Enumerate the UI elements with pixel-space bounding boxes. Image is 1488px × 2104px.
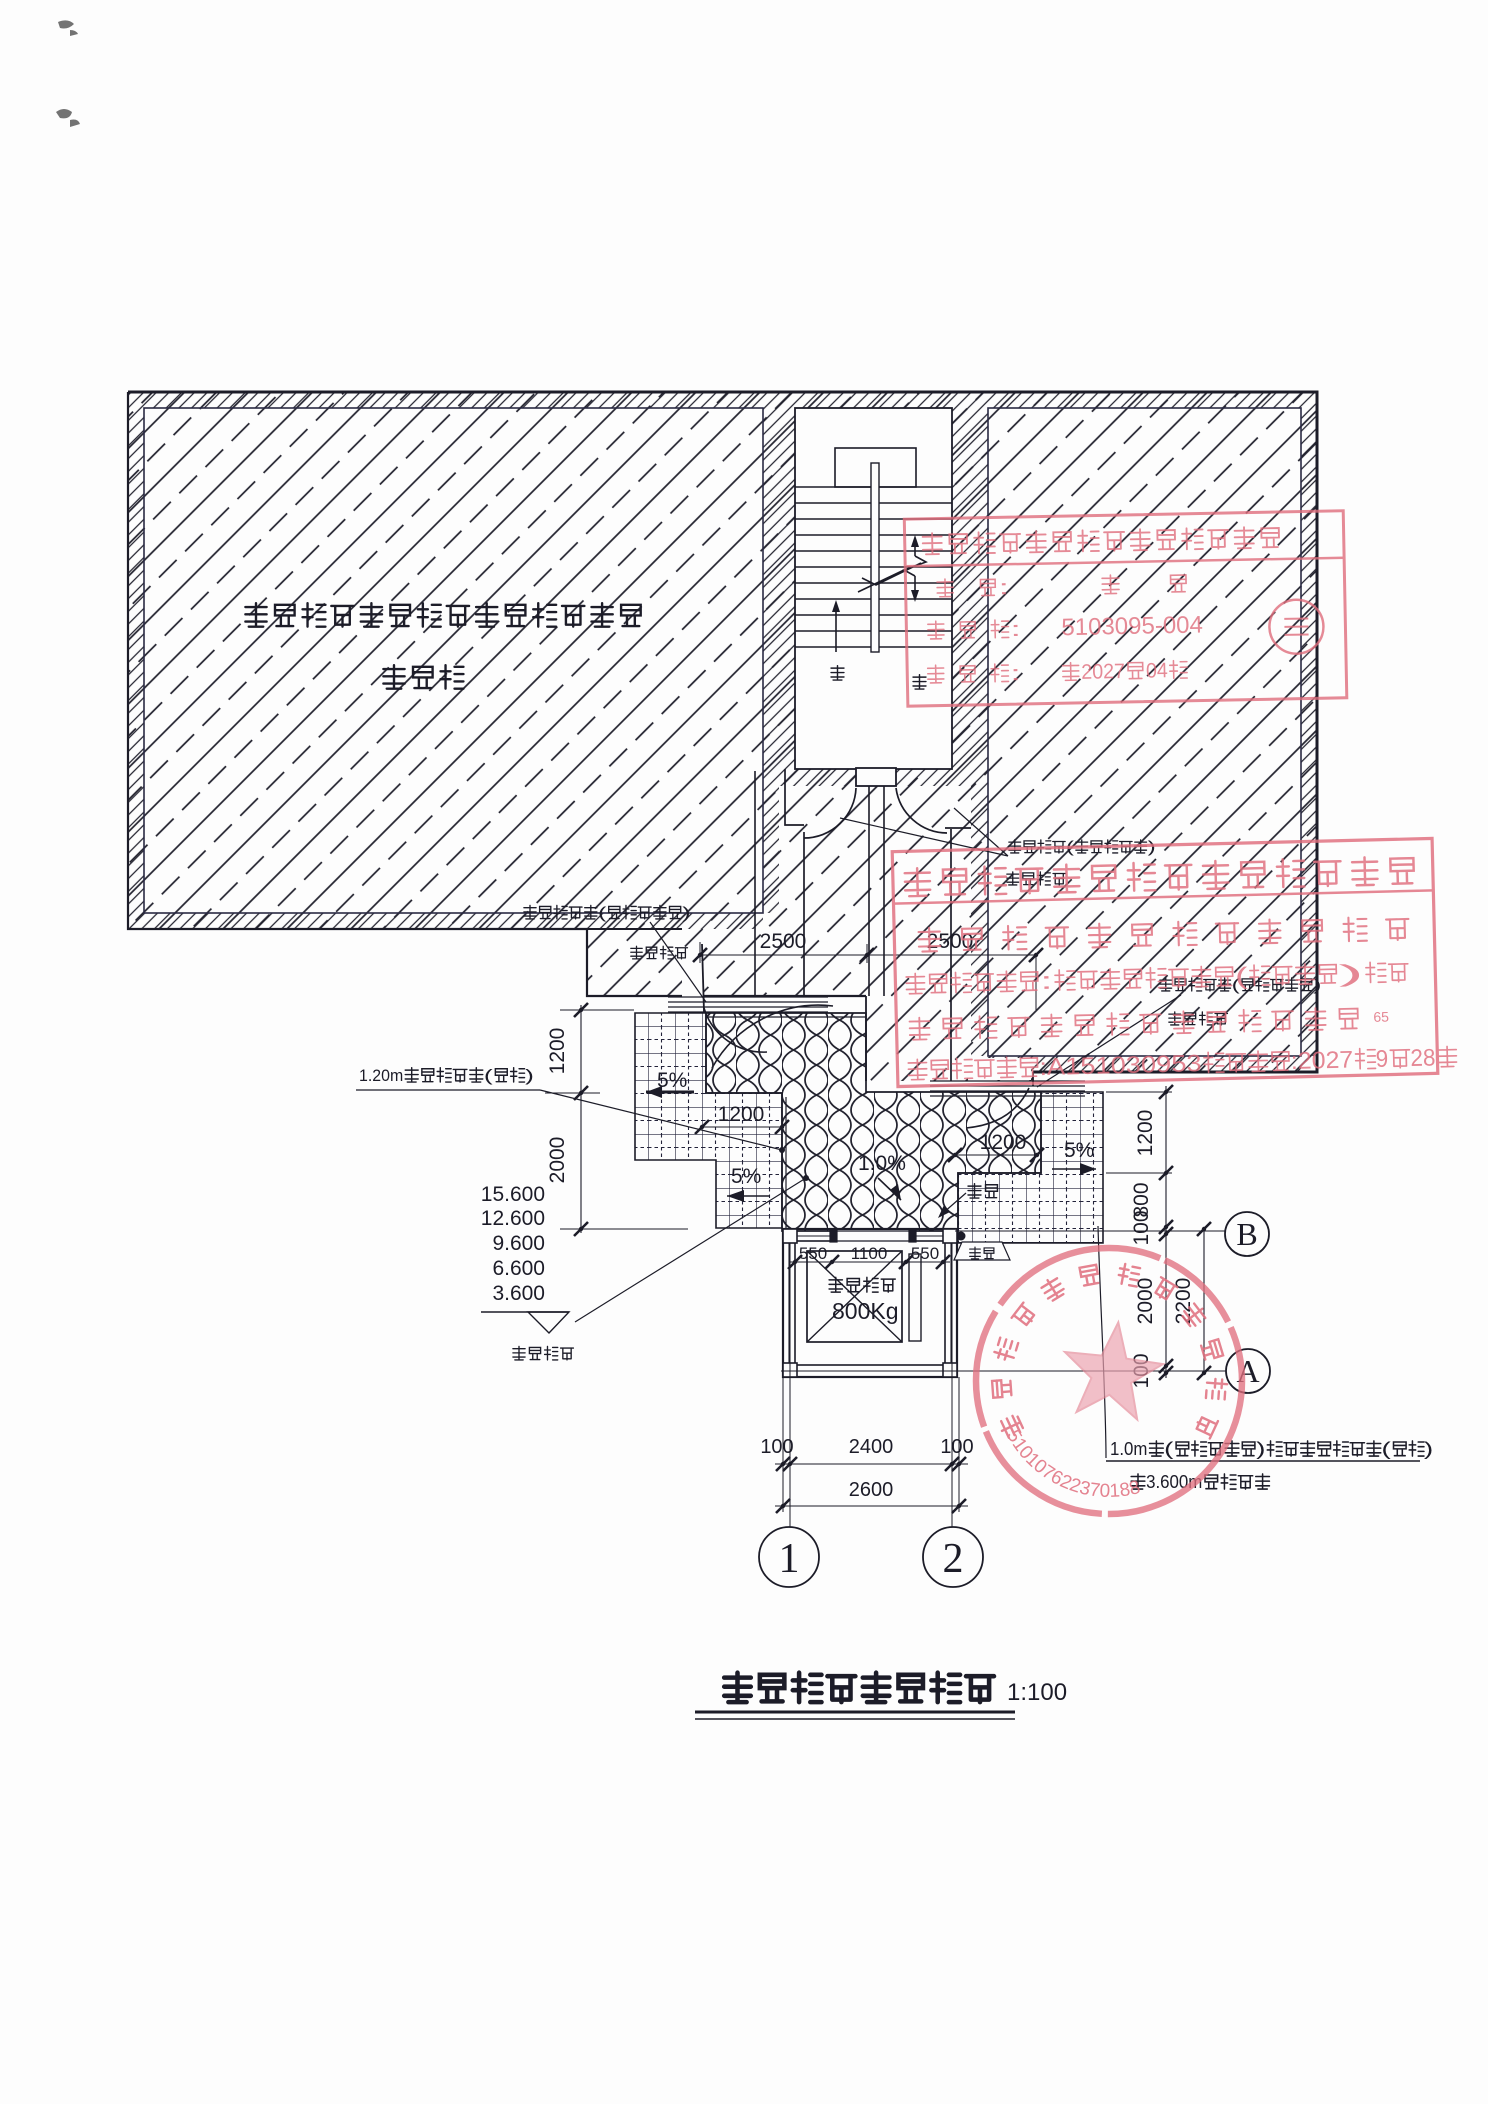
svg-text:2: 2 [943, 1536, 964, 1582]
svg-text:1.0m: 1.0m [1110, 1439, 1147, 1459]
svg-text:(: ( [484, 1066, 493, 1085]
svg-text:2500: 2500 [760, 930, 807, 953]
svg-text:): ) [1148, 839, 1156, 856]
svg-text:2000: 2000 [546, 1137, 569, 1184]
svg-text:28: 28 [1410, 1044, 1436, 1072]
svg-text:550: 550 [799, 1244, 827, 1263]
svg-text:04: 04 [1146, 659, 1169, 682]
svg-text:1200: 1200 [718, 1103, 765, 1126]
svg-text:5%: 5% [1064, 1139, 1094, 1162]
svg-text:12.600: 12.600 [481, 1207, 545, 1230]
svg-text::: : [1010, 618, 1021, 641]
svg-text:100: 100 [1130, 1210, 1153, 1245]
svg-text:1200: 1200 [546, 1028, 569, 1075]
svg-text::2027: :2027 [1291, 1046, 1354, 1075]
svg-text::: : [1040, 968, 1053, 995]
svg-text:2027: 2027 [1081, 660, 1125, 684]
svg-text:1200: 1200 [980, 1131, 1027, 1154]
svg-text:2600: 2600 [849, 1479, 894, 1501]
svg-text:1.0%: 1.0% [858, 1152, 906, 1175]
svg-text:6.600: 6.600 [492, 1257, 545, 1280]
svg-text:800Kg: 800Kg [832, 1298, 899, 1324]
svg-text:1: 1 [779, 1536, 800, 1582]
svg-text:1:100: 1:100 [1007, 1679, 1067, 1706]
svg-text:): ) [682, 905, 690, 922]
svg-text::: : [1010, 662, 1021, 685]
svg-text:550: 550 [911, 1244, 939, 1263]
svg-text:5%: 5% [731, 1165, 761, 1188]
svg-text:): ) [1256, 1439, 1265, 1459]
svg-text::A151030953: :A151030953 [1039, 1050, 1202, 1081]
svg-text:): ) [525, 1066, 534, 1085]
svg-text:B: B [1236, 1216, 1257, 1252]
svg-text:1200: 1200 [1134, 1110, 1157, 1157]
svg-text:100: 100 [760, 1436, 793, 1458]
svg-text:2400: 2400 [849, 1436, 894, 1458]
svg-text:(: ( [598, 905, 607, 922]
svg-text:1.20m: 1.20m [359, 1066, 403, 1085]
svg-text:5103095-004: 5103095-004 [1061, 611, 1203, 641]
svg-text:9.600: 9.600 [492, 1232, 545, 1255]
svg-text:3.600: 3.600 [492, 1282, 545, 1305]
svg-text:(: ( [1164, 1439, 1173, 1459]
svg-text::: : [998, 576, 1009, 599]
svg-text:(: ( [1381, 1439, 1390, 1459]
svg-text:100: 100 [940, 1436, 973, 1458]
svg-text:9: 9 [1375, 1046, 1388, 1073]
svg-text:1100: 1100 [851, 1244, 888, 1263]
svg-text:65: 65 [1373, 1009, 1389, 1025]
svg-text:2000: 2000 [1134, 1278, 1157, 1325]
svg-text:15.600: 15.600 [481, 1183, 545, 1206]
svg-text:): ) [1338, 960, 1364, 988]
svg-text:): ) [1424, 1439, 1433, 1459]
svg-text:(: ( [1235, 963, 1248, 990]
